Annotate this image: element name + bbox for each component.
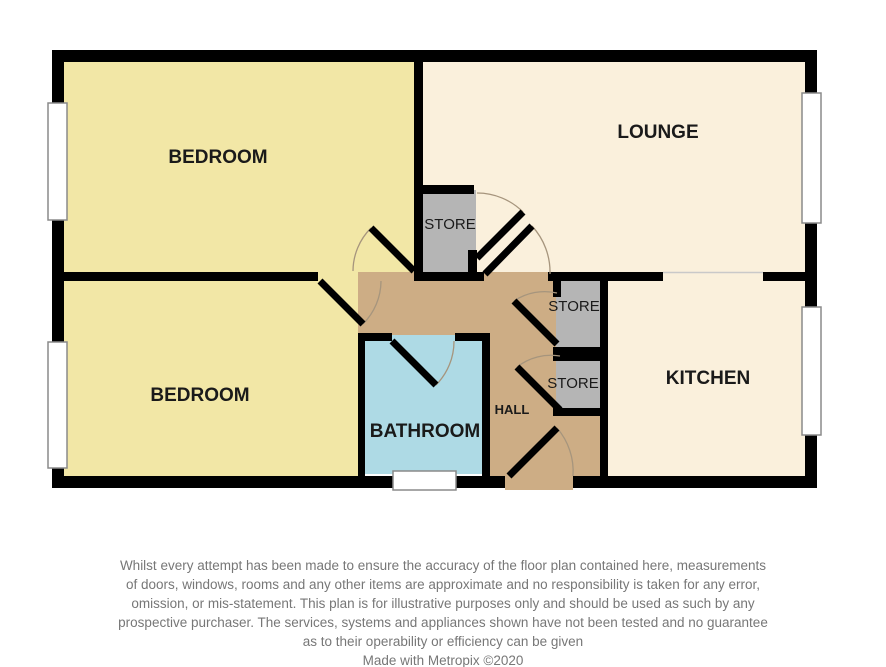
disclaimer-line: of doors, windows, rooms and any other i…: [0, 575, 886, 594]
bedroom-2-label: BEDROOM: [150, 385, 249, 406]
store-1-label: STORE: [424, 216, 475, 233]
window-bedroom-2: [48, 342, 67, 468]
floorplan-page: BEDROOM BEDROOM LOUNGE KITCHEN BATHROOM …: [0, 0, 886, 667]
bathroom-label: BATHROOM: [370, 421, 480, 442]
window-kitchen: [802, 307, 821, 435]
lounge-label: LOUNGE: [617, 122, 698, 143]
disclaimer-line: prospective purchaser. The services, sys…: [0, 613, 886, 632]
bedroom-2-floor: [64, 272, 364, 476]
window-bedroom-1: [48, 103, 67, 220]
store-2-label: STORE: [548, 298, 599, 315]
window-bathroom: [393, 471, 456, 490]
bedroom-1-floor: [64, 62, 423, 281]
disclaimer: Whilst every attempt has been made to en…: [0, 556, 886, 667]
bathroom-floor: [360, 335, 488, 474]
disclaimer-line: as to their operability or efficiency ca…: [0, 632, 886, 651]
window-lounge: [802, 93, 821, 223]
metropix-credit: Made with Metropix ©2020: [0, 651, 886, 667]
disclaimer-line: Whilst every attempt has been made to en…: [0, 556, 886, 575]
hall-label: HALL: [495, 402, 530, 417]
bedroom-1-label: BEDROOM: [168, 147, 267, 168]
store-1-floor: [420, 190, 476, 276]
front-door-gap-floor: [505, 474, 573, 490]
kitchen-label: KITCHEN: [666, 368, 750, 389]
disclaimer-line: omission, or mis-statement. This plan is…: [0, 594, 886, 613]
store-3-label: STORE: [547, 375, 598, 392]
